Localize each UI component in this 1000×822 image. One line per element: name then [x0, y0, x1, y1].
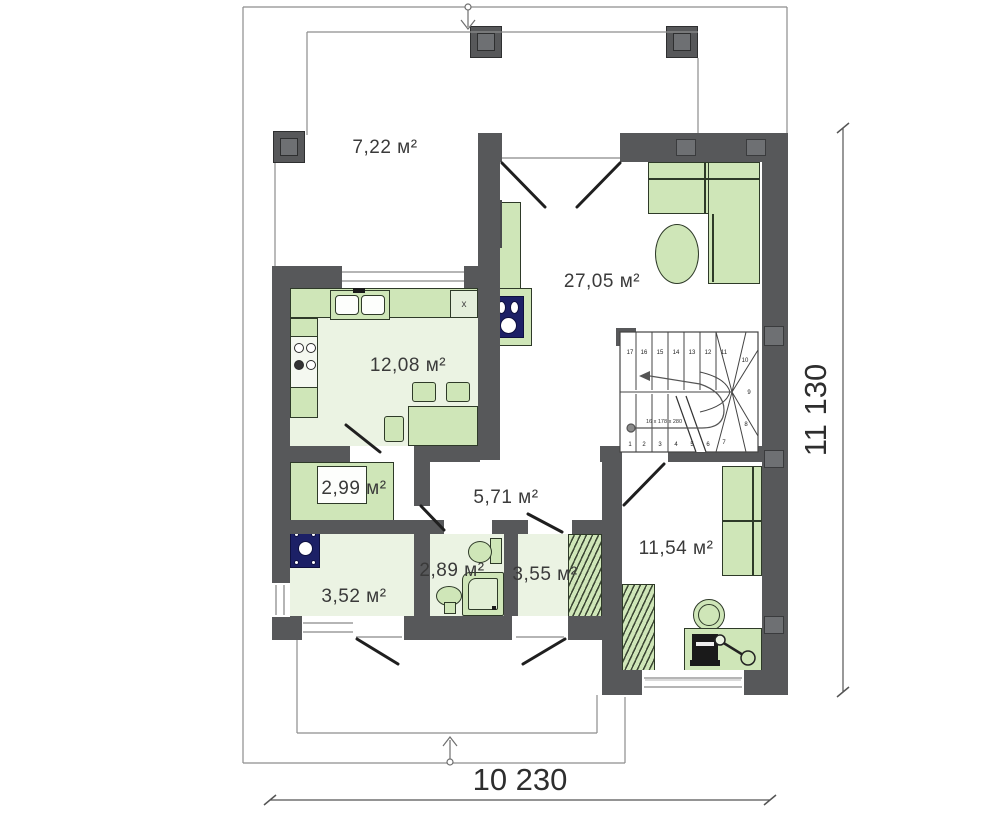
stair-note: 16 x 178 x 280	[646, 419, 682, 425]
wall	[272, 266, 344, 288]
wall	[272, 446, 350, 462]
terrace-column	[666, 26, 698, 58]
wall	[414, 446, 480, 462]
dimension-right-value: 11 130	[798, 364, 833, 457]
stair-step-number: 9	[747, 390, 751, 396]
dining-chair	[412, 382, 436, 402]
room-label-living: 27,05 м²	[564, 271, 640, 293]
wall	[272, 520, 414, 534]
wall	[404, 616, 512, 640]
door-leaf	[357, 639, 398, 664]
coffee-table	[655, 224, 699, 284]
room-label-bedroom: 11,54 м²	[639, 538, 714, 560]
stair-wall-stub	[616, 328, 636, 346]
stair-step-number: 8	[744, 422, 748, 428]
entry-cabinet	[499, 202, 521, 292]
wall	[744, 670, 788, 695]
fridge-marker: x	[462, 299, 467, 310]
dimension-bottom-value: 10 230	[473, 762, 568, 797]
bedroom-wardrobe	[622, 584, 655, 672]
bedroom-sofa-line	[722, 520, 762, 522]
desk-computer-base	[690, 660, 720, 666]
room-label-laundry: 3,52 м²	[321, 586, 386, 608]
pilaster	[764, 616, 784, 634]
pilaster	[764, 326, 784, 346]
wall	[414, 462, 430, 506]
dining-chair	[446, 382, 470, 402]
wall	[602, 670, 642, 695]
stair-step-number: 15	[657, 350, 664, 356]
stair-step-number: 2	[642, 442, 646, 448]
window	[642, 670, 744, 695]
wall	[272, 616, 302, 640]
column-core	[477, 33, 495, 51]
dining-table	[408, 406, 478, 446]
sofa-cushion-line	[704, 162, 706, 214]
washing-machine	[290, 528, 320, 568]
stair-break	[676, 396, 706, 452]
terrace-column	[273, 131, 305, 163]
door-leaf	[577, 163, 620, 207]
stair-step-number: 1	[628, 442, 632, 448]
stair-step-number: 3	[658, 442, 662, 448]
staircase: 16 x 178 x 280 1 2 3 4 5 6 7 8 9 10 11 1…	[620, 332, 758, 452]
dimension-right: 11 130	[798, 123, 849, 697]
wall	[272, 288, 290, 583]
stair-step-number: 12	[705, 350, 712, 356]
sofa-cushion-line	[712, 214, 714, 282]
room-label-hallway: 5,71 м²	[473, 487, 538, 509]
bedroom-sofa-line	[752, 466, 754, 576]
pilaster	[764, 450, 784, 468]
stair-step-number: 13	[689, 350, 696, 356]
washer-drum	[298, 541, 313, 556]
pilaster	[746, 139, 766, 156]
dimension-bottom: 10 230	[264, 762, 776, 805]
plan-linework: 16 x 178 x 280 1 2 3 4 5 6 7 8 9 10 11 1…	[0, 0, 1000, 822]
stair-walkline	[627, 371, 724, 432]
door-leaf	[528, 514, 562, 532]
stair-step-number: 16	[641, 350, 648, 356]
stair-step-number: 11	[721, 350, 728, 356]
room-label-terrace: 7,22 м²	[352, 137, 417, 159]
boiler-knob	[510, 301, 519, 314]
terrace-column	[470, 26, 502, 58]
sink-basin-right	[361, 295, 385, 315]
wall	[572, 520, 602, 534]
bath-sink-pedestal	[444, 602, 456, 614]
desk-computer-slot	[696, 642, 714, 646]
door-leaf	[502, 163, 545, 207]
dining-chair	[384, 416, 404, 442]
washer-dot	[311, 560, 316, 565]
door-leaf	[624, 464, 664, 505]
room-label-kitchen: 12,08 м²	[370, 355, 446, 377]
window	[302, 616, 354, 640]
room-label-pantry: 2,99 м²	[321, 478, 386, 500]
fridge-box: x	[450, 290, 478, 318]
window	[272, 583, 290, 617]
wall	[602, 462, 622, 695]
wall	[492, 520, 528, 534]
wall	[414, 520, 444, 534]
entrance-arrow-bottom	[443, 737, 457, 765]
column-core	[673, 33, 691, 51]
wall	[478, 160, 500, 460]
wall	[568, 616, 622, 640]
room-label-bathroom: 2,89 м²	[419, 560, 484, 582]
washer-dot	[294, 560, 299, 565]
desk-computer	[692, 634, 718, 660]
room-label-closet: 3,55 м²	[512, 564, 577, 586]
pilaster	[676, 139, 696, 156]
stair-step-number: 10	[742, 358, 749, 364]
column-core	[280, 138, 298, 156]
stove-burner	[294, 360, 304, 370]
stove-burner	[306, 343, 316, 353]
stove-burner	[306, 360, 316, 370]
wall	[478, 133, 502, 162]
wall	[600, 446, 622, 462]
wall	[762, 133, 788, 695]
stair-step-number: 14	[673, 350, 680, 356]
sink-basin-left	[335, 295, 359, 315]
stove-burner	[294, 343, 304, 353]
door-leaf	[523, 639, 565, 664]
floor-plan: x	[0, 0, 1000, 822]
window	[342, 266, 464, 288]
stair-step-number: 17	[627, 350, 634, 356]
living-sofa-chaise	[708, 162, 760, 284]
shower-drain	[492, 606, 496, 610]
bedroom-chair-ring	[698, 604, 720, 626]
boiler-door	[500, 317, 517, 334]
